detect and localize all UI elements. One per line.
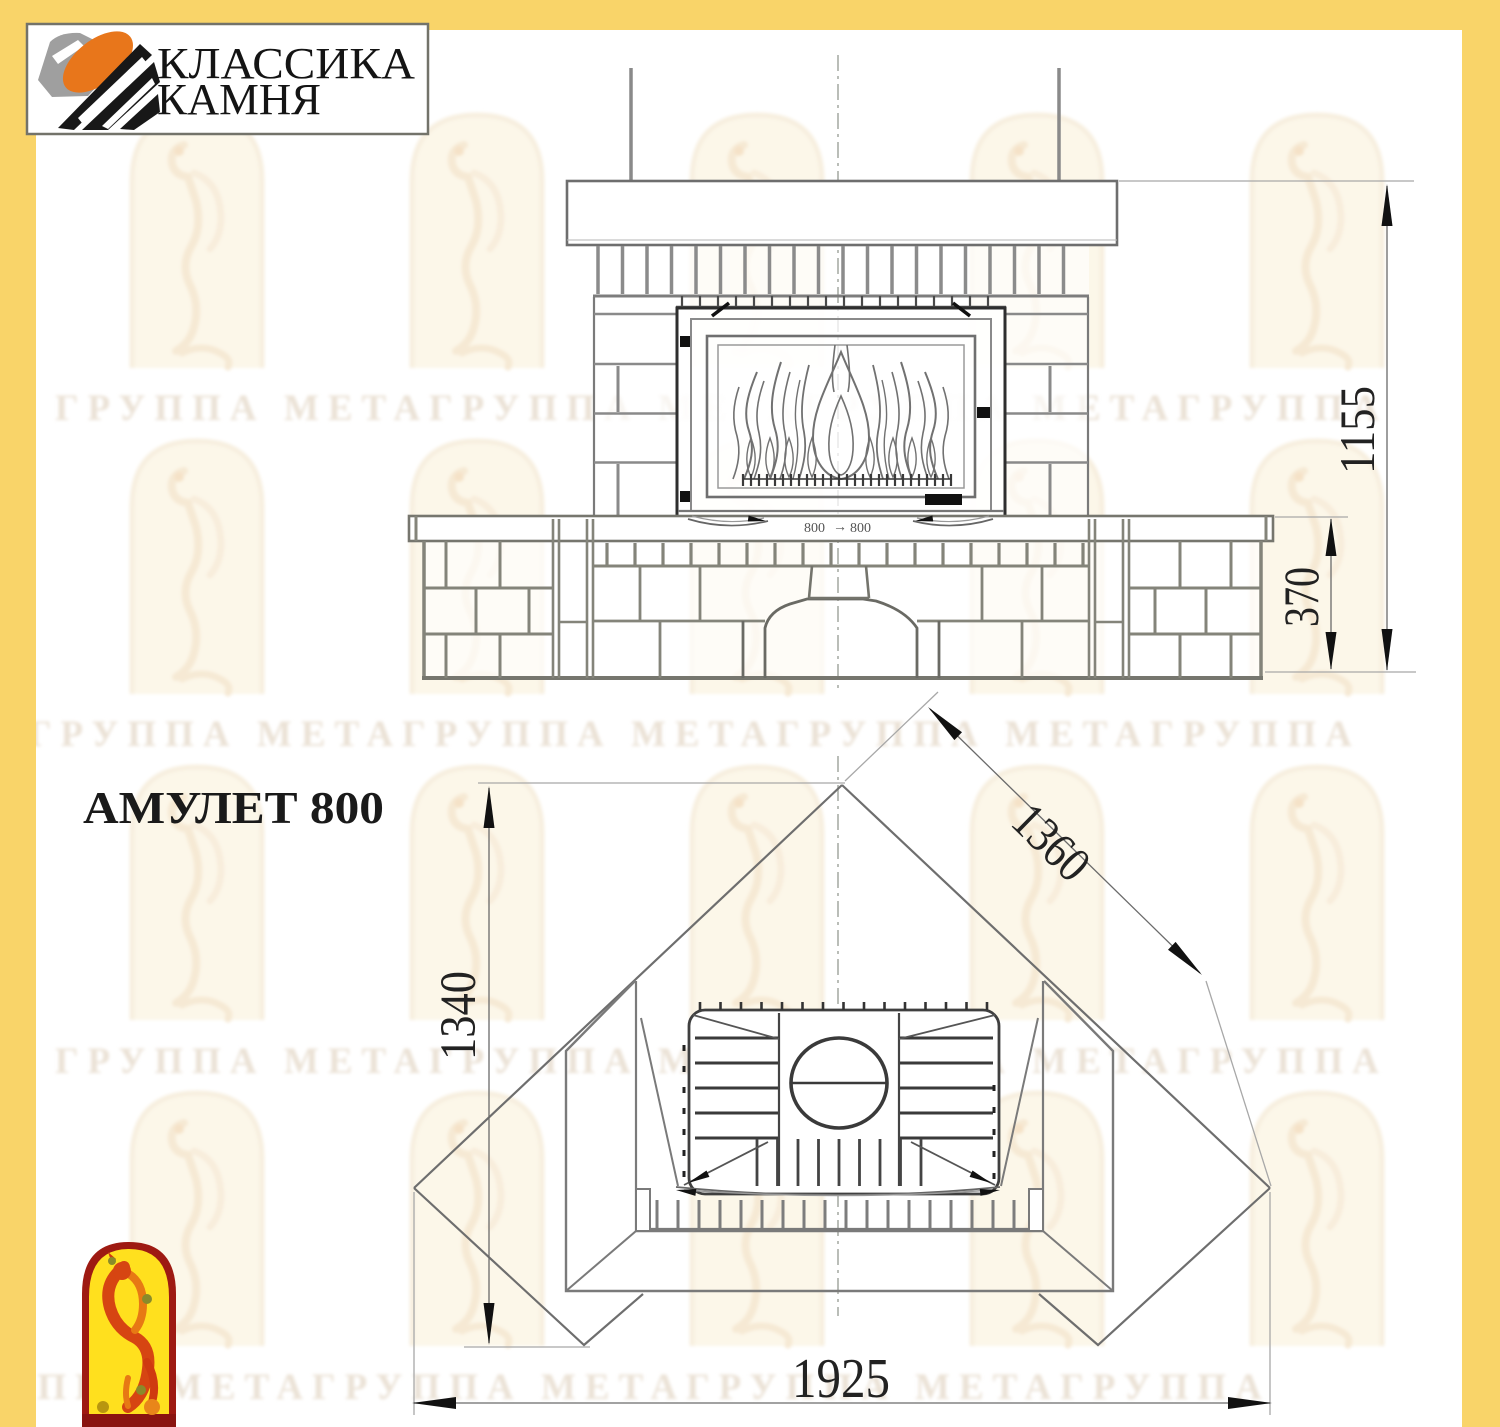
svg-text:АМУЛЕТ 800: АМУЛЕТ 800 <box>83 782 384 833</box>
svg-text:800: 800 <box>804 521 825 536</box>
svg-text:ГРУППА МЕТАГРУППА МЕТАГРУППА М: ГРУППА МЕТАГРУППА МЕТАГРУППА МЕТАГРУППА <box>0 1367 1271 1408</box>
svg-text:ГРУППА МЕТАГРУППА МЕТАГРУППА М: ГРУППА МЕТАГРУППА МЕТАГРУППА МЕТАГРУППА <box>28 714 1361 755</box>
svg-text:КАМНЯ: КАМНЯ <box>157 75 321 124</box>
svg-text:1925: 1925 <box>792 1348 890 1410</box>
svg-text:1340: 1340 <box>431 971 487 1060</box>
svg-text:1155: 1155 <box>1329 386 1385 474</box>
svg-text:800: 800 <box>850 521 871 536</box>
svg-text:→: → <box>833 520 847 535</box>
svg-text:370: 370 <box>1273 567 1329 627</box>
